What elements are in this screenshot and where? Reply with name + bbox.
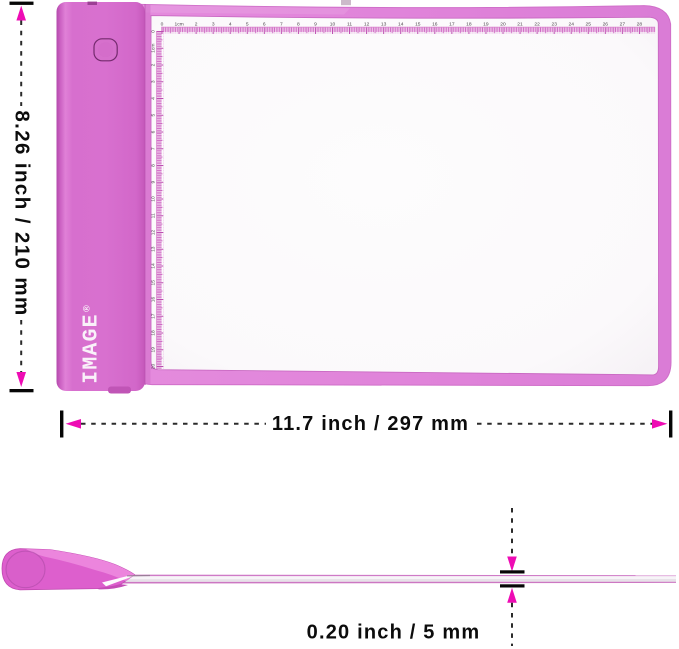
svg-text:26: 26 (603, 22, 609, 28)
svg-text:22: 22 (534, 22, 540, 28)
svg-text:28: 28 (637, 22, 643, 28)
svg-text:12: 12 (364, 22, 370, 28)
svg-text:3: 3 (150, 80, 156, 83)
svg-text:4: 4 (150, 97, 156, 100)
svg-text:25: 25 (585, 22, 591, 28)
svg-text:11: 11 (150, 213, 156, 218)
svg-text:27: 27 (620, 22, 626, 28)
svg-text:16: 16 (150, 297, 156, 303)
svg-text:15: 15 (150, 280, 156, 286)
svg-text:IMAGE: IMAGE (80, 313, 104, 384)
svg-text:0.20 inch / 5 mm: 0.20 inch / 5 mm (307, 622, 481, 644)
svg-text:16: 16 (432, 22, 438, 28)
svg-text:11.7 inch / 297 mm: 11.7 inch / 297 mm (272, 413, 469, 435)
svg-text:17: 17 (150, 313, 156, 319)
svg-text:1cm: 1cm (150, 44, 156, 53)
svg-text:19: 19 (483, 22, 489, 28)
svg-text:23: 23 (551, 22, 557, 28)
svg-text:7: 7 (150, 147, 156, 150)
svg-text:21: 21 (517, 22, 523, 28)
svg-text:11: 11 (347, 22, 352, 28)
svg-text:8.26 inch / 210 mm: 8.26 inch / 210 mm (10, 110, 33, 316)
svg-text:8: 8 (150, 164, 156, 167)
svg-text:9: 9 (314, 22, 317, 28)
svg-text:20: 20 (150, 364, 156, 370)
svg-text:0: 0 (150, 30, 156, 33)
svg-text:®: ® (82, 305, 92, 312)
svg-text:20: 20 (500, 22, 506, 28)
svg-text:5: 5 (246, 22, 249, 28)
svg-text:13: 13 (150, 246, 156, 252)
svg-text:18: 18 (466, 22, 472, 28)
svg-text:6: 6 (150, 130, 156, 133)
svg-text:7: 7 (280, 22, 283, 28)
svg-text:4: 4 (229, 22, 232, 28)
svg-text:9: 9 (150, 181, 156, 184)
svg-text:13: 13 (381, 22, 387, 28)
svg-text:2: 2 (150, 63, 156, 66)
svg-text:12: 12 (150, 230, 156, 236)
svg-text:0: 0 (161, 22, 164, 28)
svg-text:1cm: 1cm (174, 22, 183, 28)
svg-text:2: 2 (195, 22, 198, 28)
svg-text:18: 18 (150, 330, 156, 336)
svg-text:10: 10 (330, 22, 336, 28)
svg-text:14: 14 (398, 22, 404, 28)
svg-text:6: 6 (263, 22, 266, 28)
svg-text:19: 19 (150, 347, 156, 353)
svg-text:24: 24 (568, 22, 574, 28)
svg-text:10: 10 (150, 196, 156, 202)
svg-text:14: 14 (150, 263, 156, 269)
svg-text:5: 5 (150, 114, 156, 117)
svg-text:8: 8 (297, 22, 300, 28)
svg-text:15: 15 (415, 22, 421, 28)
svg-text:3: 3 (212, 22, 215, 28)
svg-text:17: 17 (449, 22, 455, 28)
